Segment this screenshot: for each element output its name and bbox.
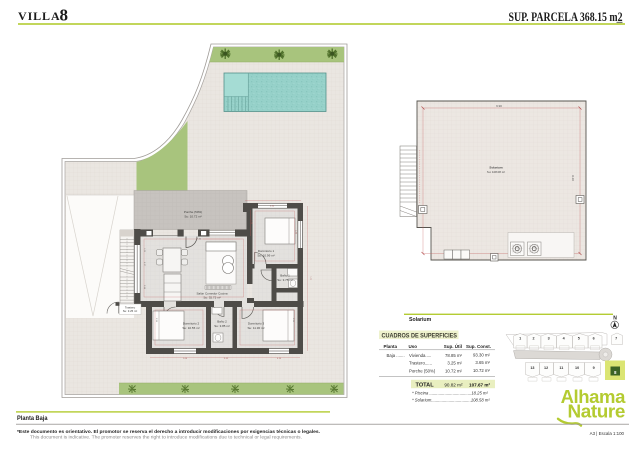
svg-text:Su: 3.75 m²: Su: 3.75 m² [277,278,293,282]
svg-text:10.72 m²: 10.72 m² [473,368,491,373]
svg-text:Vivienda.....: Vivienda..... [409,353,431,358]
svg-text:13: 13 [530,366,534,370]
svg-text:Su: 10.72 m²: Su: 10.72 m² [184,215,201,219]
svg-text:3: 3 [548,337,550,341]
svg-text:Dormitorio 3: Dormitorio 3 [248,322,265,326]
svg-text:Su: 35.75 m²: Su: 35.75 m² [203,295,220,299]
svg-text:Planta Baja: Planta Baja [17,416,48,422]
svg-text:Sup. Const.: Sup. Const. [466,344,491,349]
svg-text:A3 | Escala 1:100: A3 | Escala 1:100 [590,431,625,436]
svg-text:VILLA: VILLA [18,9,61,23]
svg-text:Trastero......: Trastero...... [409,361,432,366]
svg-text:Porche (50%): Porche (50%) [409,368,436,373]
svg-text:9.90: 9.90 [496,104,502,108]
svg-text:107.67 m²: 107.67 m² [469,382,490,387]
svg-text:8: 8 [60,6,69,25]
svg-text:Su: 3.85 m²: Su: 3.85 m² [214,324,230,328]
svg-text:10: 10 [575,366,579,370]
svg-text:Dormitorio 1: Dormitorio 1 [258,249,275,253]
svg-text:3.65 m²: 3.65 m² [475,360,490,365]
svg-text:Uso: Uso [409,344,418,349]
svg-text:CUADROS DE SUPERFICIES: CUADROS DE SUPERFICIES [382,332,458,339]
svg-text:SUP. PARCELA 368.15 m2: SUP. PARCELA 368.15 m2 [509,10,623,24]
svg-text:2: 2 [532,337,534,341]
svg-text:7: 7 [615,337,617,341]
svg-text:Su: 11.30 m²: Su: 11.30 m² [248,326,265,330]
svg-text:Solarium: Solarium [409,317,432,323]
svg-text:TOTAL: TOTAL [416,382,435,388]
svg-text:Planta: Planta [384,344,398,349]
svg-text:N: N [613,316,617,322]
svg-text:This document is indicative. T: This document is indicative. The promote… [30,435,302,440]
svg-text:5: 5 [578,337,580,341]
svg-text:1: 1 [519,337,521,341]
svg-text:12: 12 [544,366,548,370]
svg-text:*Este documento es orientativo: *Este documento es orientativo. El promo… [17,429,320,434]
svg-text:6: 6 [593,337,595,341]
svg-text:Su: 10.55 m²: Su: 10.55 m² [182,326,199,330]
svg-text:Su: 10.99 m²: Su: 10.99 m² [257,254,274,258]
svg-text:10.72 m²: 10.72 m² [445,368,463,373]
svg-text:Su: 108.08 m²: Su: 108.08 m² [487,170,505,174]
svg-text:* Piscina ....................: * Piscina ..............................… [412,390,488,395]
svg-text:Dormitorio 2: Dormitorio 2 [183,322,200,326]
svg-text:3.25 m²: 3.25 m² [447,361,462,366]
svg-text:Porche (50%): Porche (50%) [184,210,202,214]
svg-text:9.10: 9.10 [571,175,575,181]
svg-text:78.85 m²: 78.85 m² [445,353,463,358]
svg-text:90.82 m²: 90.82 m² [444,382,463,387]
svg-text:9: 9 [593,366,595,370]
svg-text:Baja .......: Baja ....... [387,353,405,358]
svg-text:93.30 m²: 93.30 m² [473,352,491,357]
svg-text:Su: 3.25 m²: Su: 3.25 m² [123,309,138,313]
svg-text:* Solarium....................: * Solarium..............................… [412,397,490,402]
svg-text:Solarium: Solarium [489,166,502,170]
svg-text:Nature: Nature [568,401,626,422]
svg-text:11: 11 [559,366,563,370]
svg-text:Sup. Útil: Sup. Útil [444,343,462,349]
